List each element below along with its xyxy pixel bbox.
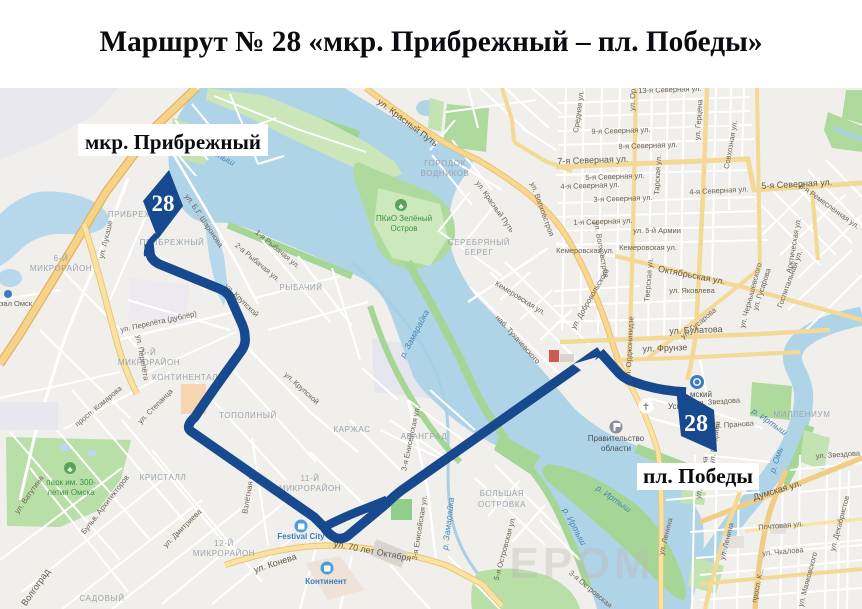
svg-text:ГОРОДОК: ГОРОДОК (424, 159, 466, 168)
svg-text:ул. Яковлева: ул. Яковлева (669, 286, 715, 295)
svg-text:МИЛЛЕНИУМ: МИЛЛЕНИУМ (774, 410, 831, 419)
svg-text:БОЛЬШАЯ: БОЛЬШАЯ (480, 489, 524, 498)
svg-text:28: 28 (684, 411, 708, 437)
svg-text:11-Й: 11-Й (300, 474, 319, 483)
svg-text:области: области (601, 444, 631, 453)
svg-text:БЕРЕГ: БЕРЕГ (465, 248, 494, 257)
svg-text:Festival City: Festival City (277, 532, 325, 541)
svg-text:парк им. 300-: парк им. 300- (46, 478, 96, 487)
svg-text:Остров: Остров (390, 224, 417, 233)
svg-text:пл. Победы: пл. Победы (643, 464, 753, 488)
svg-text:КАРЖАС: КАРЖАС (333, 425, 370, 434)
svg-text:КОНТИНЕНТАЛЬ: КОНТИНЕНТАЛЬ (152, 373, 224, 382)
svg-text:♣: ♣ (67, 465, 73, 474)
svg-text:ПРИБРЕЖ: ПРИБРЕЖ (108, 210, 152, 219)
svg-text:ВОДНИКОВ: ВОДНИКОВ (421, 169, 470, 178)
svg-text:6-Й: 6-Й (54, 254, 69, 263)
svg-text:Правительство: Правительство (588, 434, 645, 443)
svg-text:ПКиО Зелёный: ПКиО Зелёный (376, 214, 432, 223)
svg-text:САДОВЫЙ: САДОВЫЙ (79, 594, 124, 603)
svg-text:КРИСТАЛЛ: КРИСТАЛЛ (140, 473, 187, 482)
svg-text:МИКРОРАЙОН: МИКРОРАЙОН (279, 484, 341, 493)
svg-text:✝: ✝ (642, 402, 650, 413)
svg-text:♣: ♣ (398, 202, 404, 211)
svg-text:СЕРЕБРЯНЫЙ: СЕРЕБРЯНЫЙ (448, 238, 511, 247)
svg-text:МИКРОРАЙОН: МИКРОРАЙОН (30, 264, 92, 273)
svg-text:28: 28 (152, 191, 175, 216)
svg-text:мский: мский (690, 390, 712, 399)
svg-text:летия Омска: летия Омска (47, 488, 95, 497)
svg-text:МИКРОРАЙОН: МИКРОРАЙОН (193, 549, 255, 558)
svg-text:ТОПОЛИНЫЙ: ТОПОЛИНЫЙ (219, 411, 277, 420)
svg-text:Континент: Континент (305, 577, 347, 586)
svg-text:мкр. Прибрежный: мкр. Прибрежный (85, 130, 261, 154)
svg-text:ЕРОМ: ЕРОМ (510, 539, 655, 588)
svg-text:ул. 5-й Армии: ул. 5-й Армии (633, 226, 681, 235)
svg-text:зал Омск: зал Омск (0, 299, 33, 308)
svg-text:ОСТРОВКА: ОСТРОВКА (478, 500, 526, 509)
svg-text:ул. Фрунзе: ул. Фрунзе (642, 342, 687, 354)
svg-text:Маршрут № 28 «мкр. Прибрежный: Маршрут № 28 «мкр. Прибрежный – пл. Побе… (99, 26, 762, 58)
svg-text:ул. Ор: ул. Ор (627, 89, 637, 112)
svg-text:РЫБАЧИЙ: РЫБАЧИЙ (279, 283, 322, 292)
svg-text:Кемеровская ул.: Кемеровская ул. (619, 243, 677, 252)
svg-text:12-Й: 12-Й (214, 539, 234, 548)
